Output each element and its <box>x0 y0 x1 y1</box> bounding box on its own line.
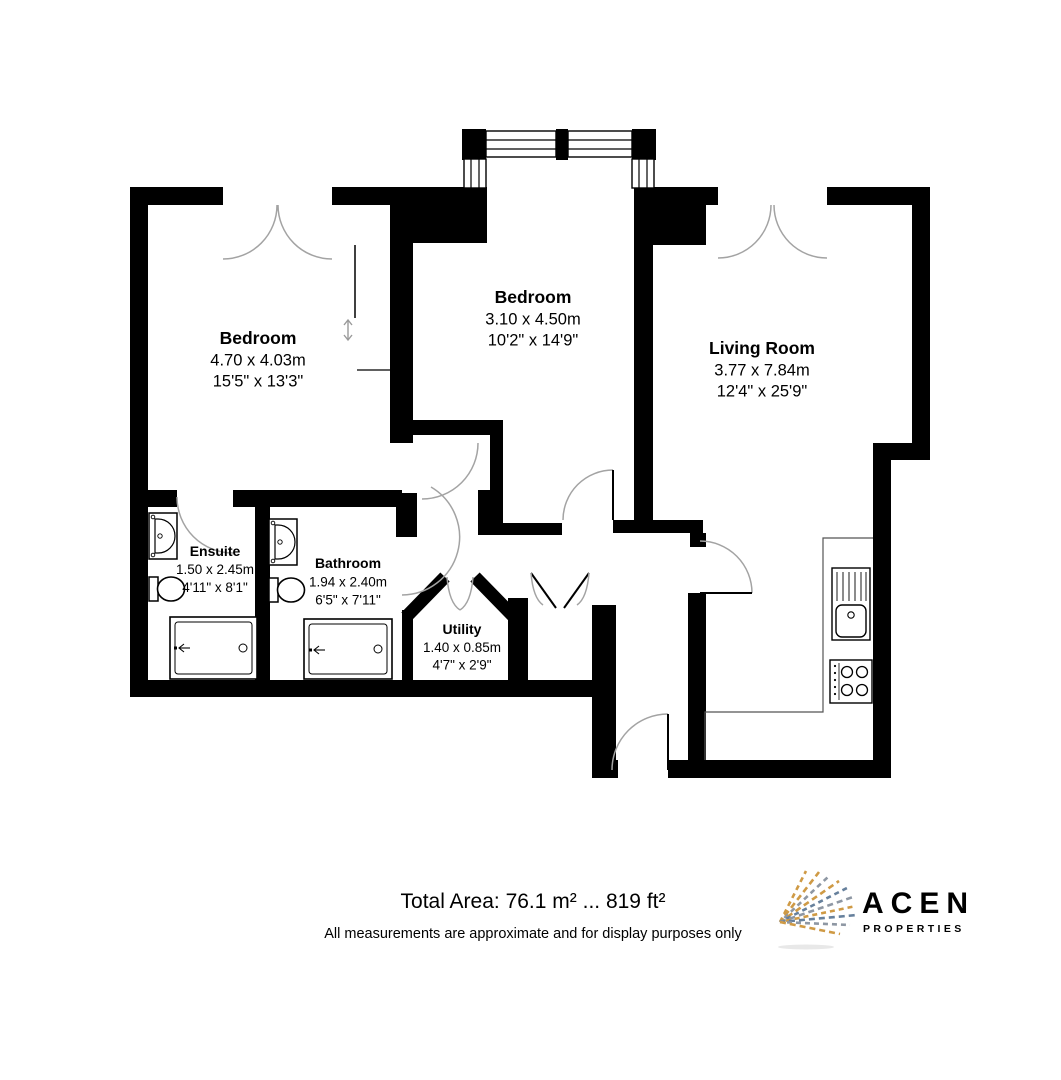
room-metric: 3.10 x 4.50m <box>485 311 580 329</box>
living-room-label: Living Room 3.77 x 7.84m 12'4" x 25'9" <box>709 338 815 401</box>
bathroom-toilet-icon <box>269 578 305 602</box>
floor-plan-svg: Bedroom 4.70 x 4.03m 15'5" x 13'3" Bedro… <box>0 0 1061 1080</box>
room-imperial: 10'2" x 14'9" <box>488 332 579 350</box>
bay-window-icon <box>462 129 656 188</box>
room-imperial: 12'4" x 25'9" <box>717 383 808 401</box>
walls <box>130 187 930 778</box>
room-metric: 3.77 x 7.84m <box>714 362 809 380</box>
bedroom2-door-arc <box>563 470 613 520</box>
room-imperial: 4'7" x 2'9" <box>432 658 491 673</box>
bedroom1-label: Bedroom 4.70 x 4.03m 15'5" x 13'3" <box>210 328 305 391</box>
utility-label: Utility 1.40 x 0.85m 4'7" x 2'9" <box>423 621 501 673</box>
room-metric: 1.94 x 2.40m <box>309 575 387 590</box>
bedroom1-door-arc <box>422 443 478 499</box>
acen-logo: ACEN PROPERTIES <box>778 871 975 950</box>
kitchen-units <box>705 538 873 760</box>
room-metric: 1.50 x 2.45m <box>176 562 254 577</box>
bedroom2-label: Bedroom 3.10 x 4.50m 10'2" x 14'9" <box>485 287 580 350</box>
entrance-door-arc <box>612 714 668 770</box>
utility-angled-wall-right <box>475 577 514 617</box>
bathroom-label: Bathroom 1.94 x 2.40m 6'5" x 7'11" <box>309 555 387 608</box>
room-name: Bedroom <box>495 287 572 307</box>
room-name: Living Room <box>709 338 815 358</box>
ensuite-toilet-icon <box>149 577 185 601</box>
ensuite-shower-tray-icon <box>170 617 257 679</box>
room-name: Utility <box>443 621 482 637</box>
room-imperial: 15'5" x 13'3" <box>213 373 304 391</box>
room-name: Bedroom <box>220 328 297 348</box>
bathroom-basin-icon <box>269 519 297 565</box>
kitchen-sink-icon <box>832 568 870 640</box>
logo-shadow <box>778 945 834 950</box>
ensuite-basin-icon <box>149 513 177 559</box>
logo-fan-icon <box>780 871 857 934</box>
bathroom-shower-tray-icon <box>304 619 392 679</box>
hob-icon <box>830 660 872 703</box>
utility-angled-wall-left <box>406 577 445 617</box>
room-imperial: 4'11" x 8'1" <box>182 580 248 595</box>
logo-wordmark: ACEN <box>862 887 975 920</box>
room-name: Ensuite <box>190 543 241 559</box>
sliding-wardrobe-icon <box>344 245 390 370</box>
total-area-text: Total Area: 76.1 m² ... 819 ft² <box>401 890 666 913</box>
livingroom-door-arc <box>700 541 752 593</box>
room-imperial: 6'5" x 7'11" <box>315 593 381 608</box>
room-name: Bathroom <box>315 555 381 571</box>
livingroom-double-door-arc-right <box>774 205 827 258</box>
logo-subtitle: PROPERTIES <box>863 923 965 935</box>
footer: Total Area: 76.1 m² ... 819 ft² All meas… <box>324 890 742 942</box>
disclaimer-text: All measurements are approximate and for… <box>324 926 742 942</box>
bedroom1-double-door-arc-left <box>223 205 277 259</box>
floorplan-page: Bedroom 4.70 x 4.03m 15'5" x 13'3" Bedro… <box>0 0 1061 1080</box>
ensuite-label: Ensuite 1.50 x 2.45m 4'11" x 8'1" <box>176 543 254 595</box>
livingroom-double-door-arc-left <box>718 205 771 258</box>
ensuite-fixtures <box>149 513 257 679</box>
room-metric: 1.40 x 0.85m <box>423 640 501 655</box>
room-metric: 4.70 x 4.03m <box>210 352 305 370</box>
sliding-door-arrow-icon <box>344 320 352 340</box>
bedroom1-double-door-arc-right <box>278 205 332 259</box>
